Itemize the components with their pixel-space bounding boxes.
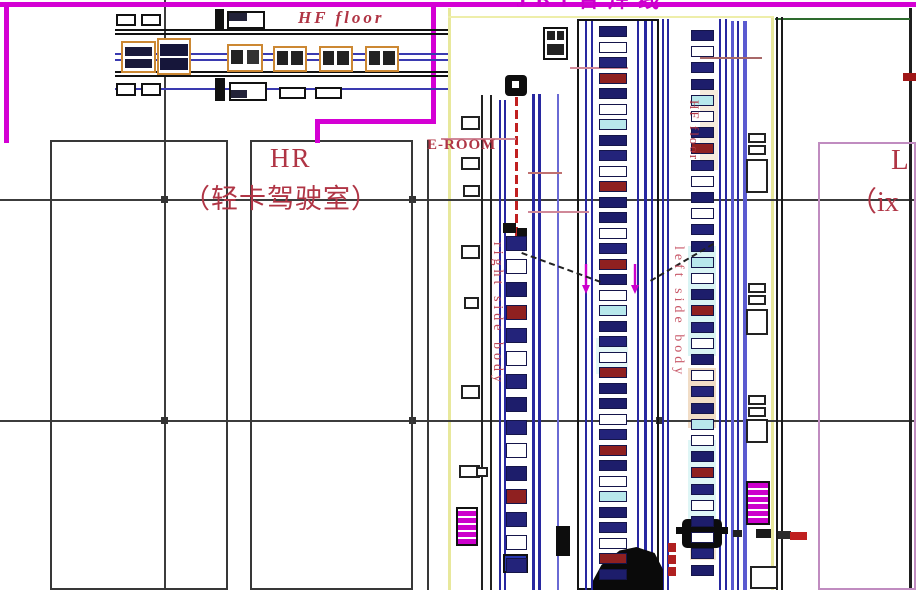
station-chain-left-side-body-block — [691, 62, 714, 73]
rail-vline — [532, 94, 535, 590]
rail-vline — [667, 19, 669, 590]
station-chain-left-side-body-block — [691, 192, 714, 203]
station-chain-right-side-body-block — [506, 351, 527, 366]
magenta-border-step-h — [315, 119, 436, 124]
door-box — [748, 145, 766, 155]
robot-glyph — [383, 51, 395, 65]
e-room-label: E-ROOM — [427, 137, 496, 154]
station-chain-center-line-block — [599, 491, 627, 502]
cropped-line-title: JB1合焊线 — [516, 0, 668, 14]
station-chain-right-side-body-block — [506, 397, 527, 412]
red-dashed-track — [515, 84, 518, 238]
left-side-body-label: left side body — [670, 246, 686, 378]
station-chain-left-side-body-block — [691, 257, 714, 268]
rail-vline — [662, 19, 664, 590]
station-chain-center-line-block — [599, 104, 627, 115]
station-chain-right-side-body-block — [506, 558, 527, 573]
room-extra-vline — [427, 140, 429, 590]
station-chain-left-side-body-block — [691, 176, 714, 187]
black-vline — [781, 17, 783, 590]
eroom-box — [463, 185, 480, 197]
door-box — [746, 419, 768, 443]
station-chain-center-line-block — [599, 212, 627, 223]
station-chain-center-line-block — [599, 42, 627, 53]
black-square — [503, 223, 516, 233]
pallet-box — [116, 83, 136, 96]
rail-vline — [644, 21, 647, 590]
station-chain-center-line-block — [599, 243, 627, 254]
station-chain-left-side-body-block — [691, 419, 714, 430]
door-box — [748, 407, 766, 417]
door-box — [748, 395, 766, 405]
door-box — [746, 159, 768, 193]
robot-glyph — [247, 50, 259, 64]
station-chain-left-side-body-block — [691, 322, 714, 333]
door-box — [746, 309, 768, 335]
robot-cell — [121, 41, 156, 73]
station-chain-right-side-body-block — [506, 489, 527, 504]
station-chain-center-line-block — [599, 553, 627, 564]
robot-glyph — [231, 50, 243, 64]
tiny-mark — [733, 530, 742, 537]
right-side-body-label: right side body — [489, 242, 505, 386]
black-equipment — [556, 526, 570, 556]
station-chain-left-side-body-block — [691, 30, 714, 41]
pallet-box — [141, 14, 161, 26]
rail-vline — [725, 19, 727, 590]
station-chain-center-line-block — [599, 57, 627, 68]
magenta-equipment — [456, 507, 478, 546]
door-box — [748, 283, 766, 293]
pallet-box — [315, 87, 342, 99]
station-chain-center-line-block — [599, 166, 627, 177]
station-chain-center-line-block — [599, 321, 627, 332]
stop-block — [215, 9, 224, 30]
station-chain-center-line-block — [599, 228, 627, 239]
station-chain-left-side-body-block — [691, 565, 714, 576]
station-chain-center-line-block — [599, 259, 627, 270]
w-symbol-glyph — [547, 31, 555, 40]
pink-connector — [528, 172, 562, 174]
eroom-box — [464, 297, 479, 309]
w-symbol-glyph — [547, 44, 564, 55]
station-chain-right-side-body-block — [506, 420, 527, 435]
station-chain-center-line-block — [599, 538, 627, 549]
eroom-box — [461, 245, 480, 259]
station-chain-center-line-block — [599, 181, 627, 192]
red-tick — [668, 555, 676, 564]
eroom-box — [461, 116, 480, 130]
station-chain-right-side-body-block — [506, 466, 527, 481]
robot-glyph — [160, 44, 188, 56]
station-chain-left-side-body-block — [691, 305, 714, 316]
station-chain-left-side-body-block — [691, 79, 714, 90]
stop-block — [215, 78, 225, 101]
station-chain-center-line-block — [599, 398, 627, 409]
rail-vline — [719, 19, 721, 590]
station-chain-left-side-body-block — [691, 338, 714, 349]
cad-canvas: JB1合焊线 HF floor HR （轻卡驾驶室） E-ROOM L （ix … — [0, 0, 916, 590]
station-chain-center-line-block — [599, 414, 627, 425]
top-conveyor-rail — [115, 33, 448, 35]
hr-room-title: HR — [270, 143, 312, 174]
robot-glyph — [125, 59, 152, 68]
station-chain-center-line-block — [599, 445, 627, 456]
rail-vline — [637, 21, 639, 590]
rail-vline — [538, 94, 541, 590]
station-chain-center-line-block — [599, 367, 627, 378]
station-chain-left-side-body-block — [691, 403, 714, 414]
station-chain-center-line-block — [599, 274, 627, 285]
robot-glyph — [369, 51, 380, 65]
station-chain-center-line-block — [599, 476, 627, 487]
station-chain-right-side-body-block — [506, 236, 527, 251]
station-chain-center-line-block — [599, 197, 627, 208]
station-chain-center-line-block — [599, 305, 627, 316]
station-chain-right-side-body-block — [506, 374, 527, 389]
station-chain-center-line-block — [599, 88, 627, 99]
robot-glyph — [160, 58, 188, 70]
magenta-border-right-drop — [431, 2, 436, 124]
magenta-equipment — [746, 481, 770, 525]
station-chain-center-line-block — [599, 135, 627, 146]
magenta-border-step-v — [315, 119, 320, 143]
robot-glyph — [337, 51, 349, 65]
station-chain-right-side-body-block — [506, 512, 527, 527]
w-symbol-glyph — [557, 31, 564, 40]
station-chain-center-line-block — [599, 429, 627, 440]
station-chain-left-side-body-block — [691, 451, 714, 462]
station-chain-center-line-block — [599, 522, 627, 533]
station-chain-right-side-body-block — [506, 443, 527, 458]
station-chain-left-side-body-block — [691, 160, 714, 171]
station-chain-center-line-block — [599, 383, 627, 394]
eroom-vline — [481, 95, 483, 590]
station-chain-left-side-body-block — [691, 273, 714, 284]
station-chain-left-side-body-block — [691, 435, 714, 446]
rail-vline — [737, 21, 739, 590]
right-room-paren-label: （ix — [849, 180, 899, 220]
pink-connector — [528, 211, 589, 213]
red-dash-top-right — [903, 73, 916, 81]
robot-glyph — [323, 51, 334, 65]
pallet-box — [116, 14, 136, 26]
magenta-border-left — [4, 2, 9, 143]
station-chain-right-side-body-block — [506, 328, 527, 343]
robot-glyph — [291, 51, 303, 65]
station-chain-left-side-body-block — [691, 467, 714, 478]
rail-vline — [731, 21, 734, 590]
black-vline — [776, 17, 778, 590]
white-outline-box — [750, 566, 778, 589]
pallet-box — [141, 83, 161, 96]
station-chain-right-side-body-block — [506, 282, 527, 297]
tiny-mark — [756, 529, 771, 538]
hoist-marker-center — [512, 81, 519, 88]
red-tick — [668, 543, 676, 552]
red-tick — [668, 567, 676, 576]
magenta-border-top — [0, 2, 916, 7]
yellow-zone-top-border — [448, 16, 774, 18]
station-chain-right-side-body-block — [506, 535, 527, 550]
station-chain-left-side-body-block — [691, 484, 714, 495]
station-chain-center-line-block — [599, 336, 627, 347]
robot-glyph — [277, 51, 288, 65]
station-chain-left-side-body-block — [691, 548, 714, 559]
station-chain-center-line-block — [599, 460, 627, 471]
station-chain-center-line-block — [599, 569, 627, 580]
yellow-zone-left-border — [448, 8, 451, 590]
top-conveyor-rail — [115, 75, 448, 77]
station-chain-left-side-body-block — [691, 354, 714, 365]
eroom-box — [476, 467, 488, 477]
door-box — [748, 295, 766, 305]
right-room-letter: L — [891, 144, 909, 177]
rail-vline — [591, 21, 593, 590]
yellow-zone-right-border — [771, 16, 774, 590]
station-chain-left-side-body-block — [691, 224, 714, 235]
station-chain-left-side-body-block — [691, 386, 714, 397]
rail-vline — [651, 21, 653, 590]
station-chain-right-side-body-block — [506, 305, 527, 320]
station-chain-center-line-block — [599, 119, 627, 130]
station-chain-right-side-body-block — [506, 259, 527, 274]
station-chain-center-line-block — [599, 507, 627, 518]
red-rect — [790, 532, 807, 540]
station-chain-left-side-body-block — [691, 46, 714, 57]
top-conveyor-rail — [115, 29, 448, 31]
flag-box-fill — [229, 13, 247, 21]
pallet-box — [279, 87, 306, 99]
station-chain-left-side-body-block — [691, 516, 714, 527]
eroom-box — [461, 157, 480, 170]
station-chain-left-side-body-block — [691, 532, 714, 543]
hr-room-subtitle: （轻卡驾驶室） — [183, 177, 379, 216]
hf-floor-label-vertical: HF floor — [686, 100, 702, 161]
station-chain-left-side-body-block — [691, 208, 714, 219]
eroom-box — [461, 385, 480, 399]
station-chain-left-side-body-block — [691, 289, 714, 300]
station-chain-center-line-block — [599, 73, 627, 84]
flag-box-fill — [231, 90, 247, 98]
station-chain-left-side-body-block — [691, 500, 714, 511]
rail-vline — [557, 94, 559, 590]
station-chain-center-line-block — [599, 290, 627, 301]
black-square — [517, 228, 527, 236]
green-hline — [775, 18, 910, 20]
station-chain-center-line-block — [599, 26, 627, 37]
robot-glyph — [125, 47, 152, 56]
station-chain-center-line-block — [599, 150, 627, 161]
hf-floor-label-top: HF floor — [298, 8, 385, 28]
pink-connector — [700, 57, 762, 59]
station-chain-center-line-block — [599, 352, 627, 363]
rail-vline — [585, 21, 587, 590]
door-box — [748, 133, 766, 143]
station-chain-left-side-body-block — [691, 370, 714, 381]
